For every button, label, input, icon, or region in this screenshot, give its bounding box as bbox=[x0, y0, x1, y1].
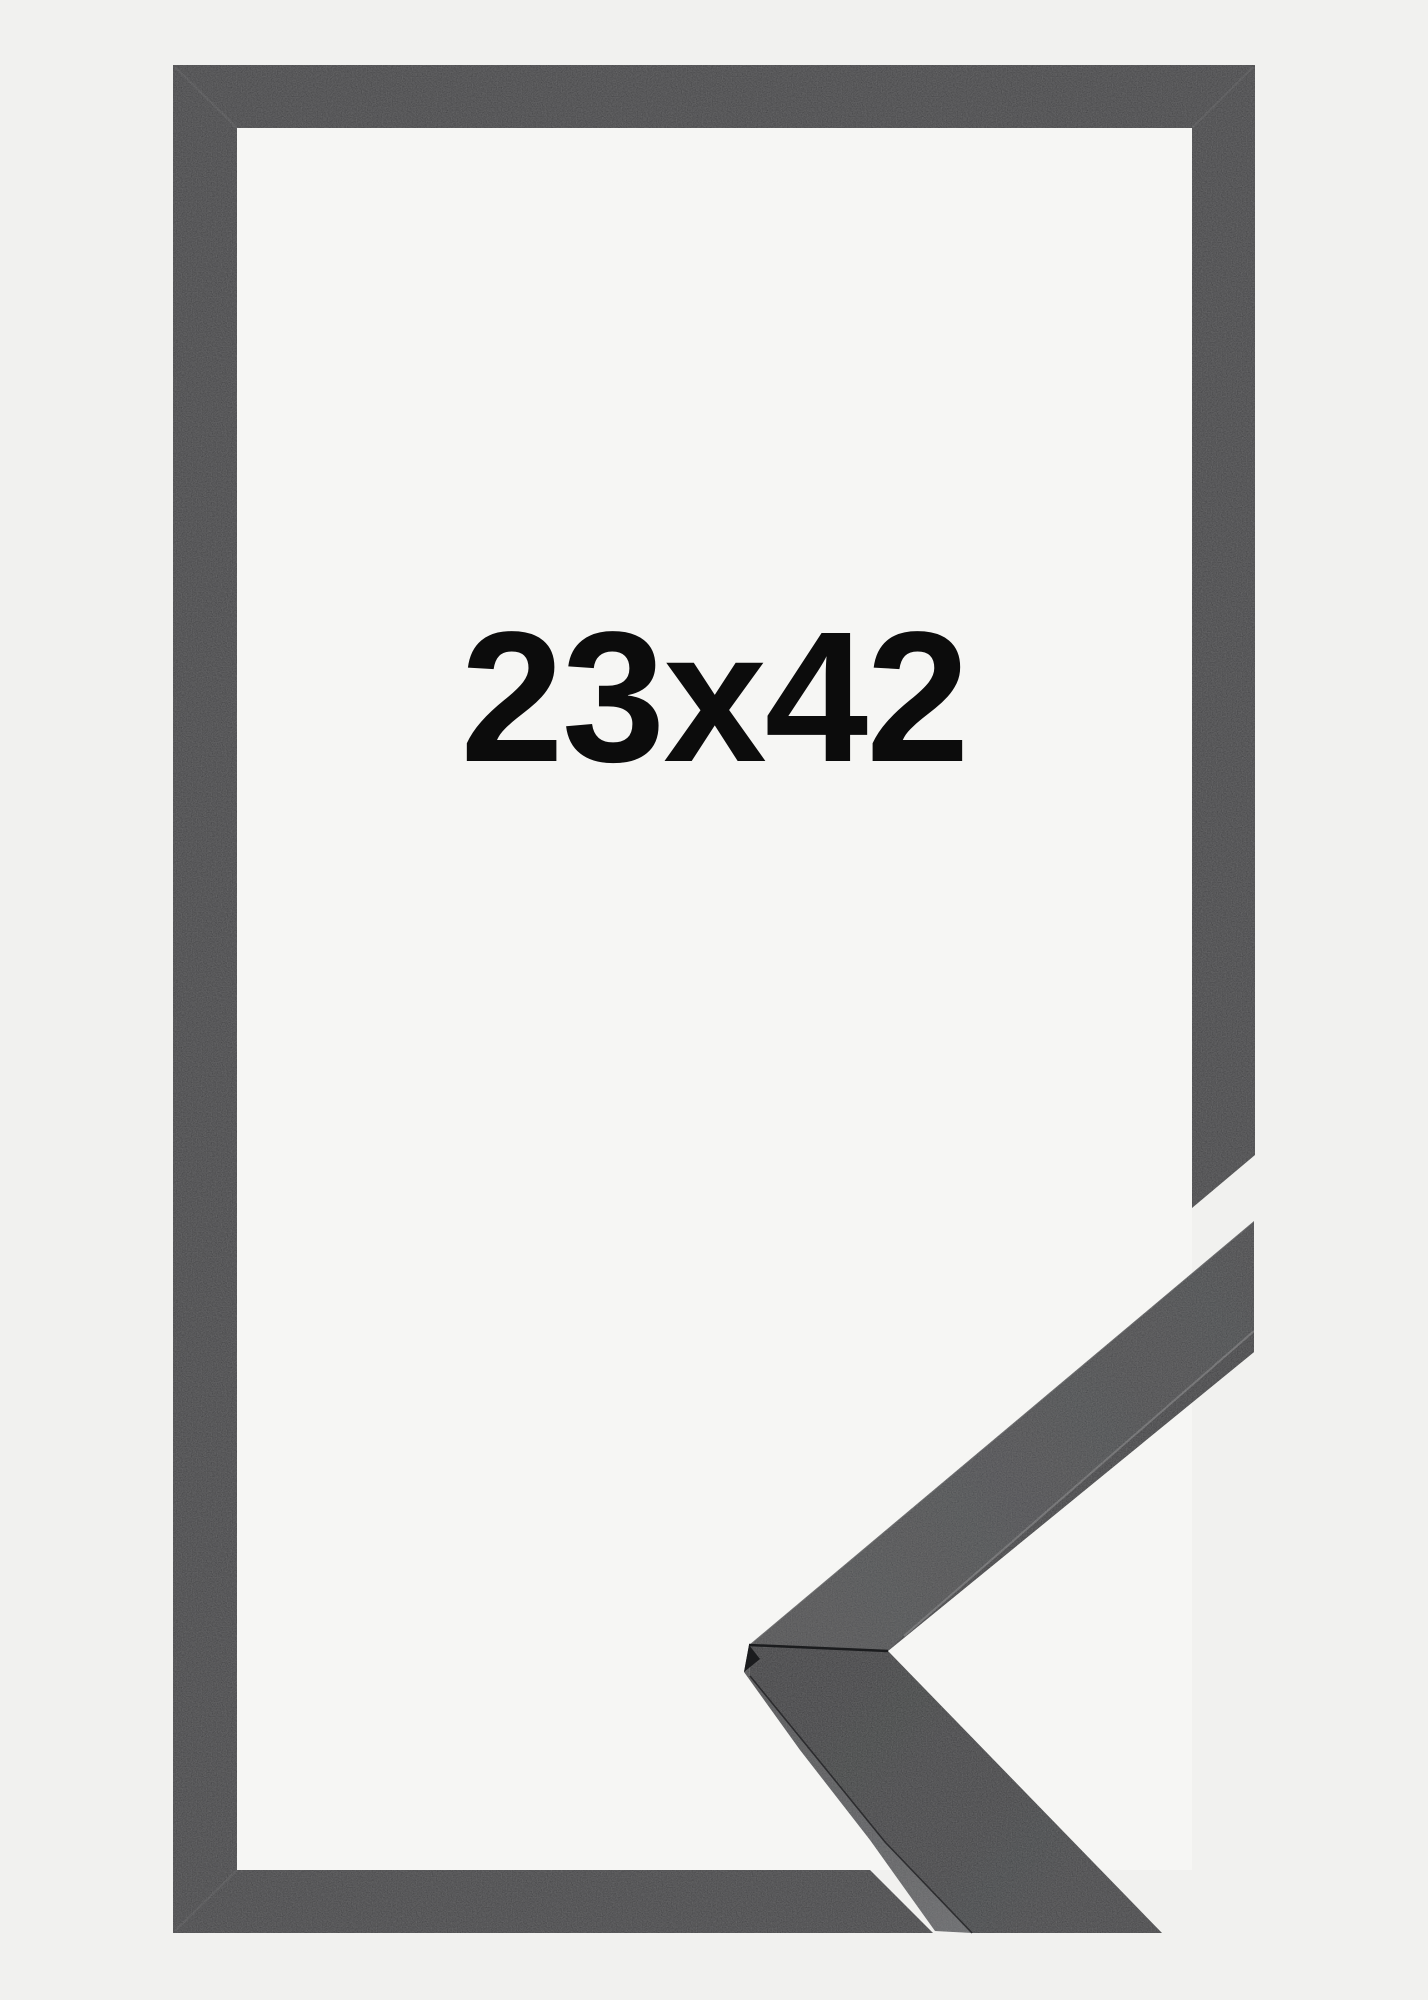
size-label: 23x42 bbox=[460, 605, 967, 791]
frame-photo-svg bbox=[0, 0, 1428, 2000]
frame-interior bbox=[237, 128, 1192, 1870]
frame-product-photo: 23x42 bbox=[0, 0, 1428, 2000]
